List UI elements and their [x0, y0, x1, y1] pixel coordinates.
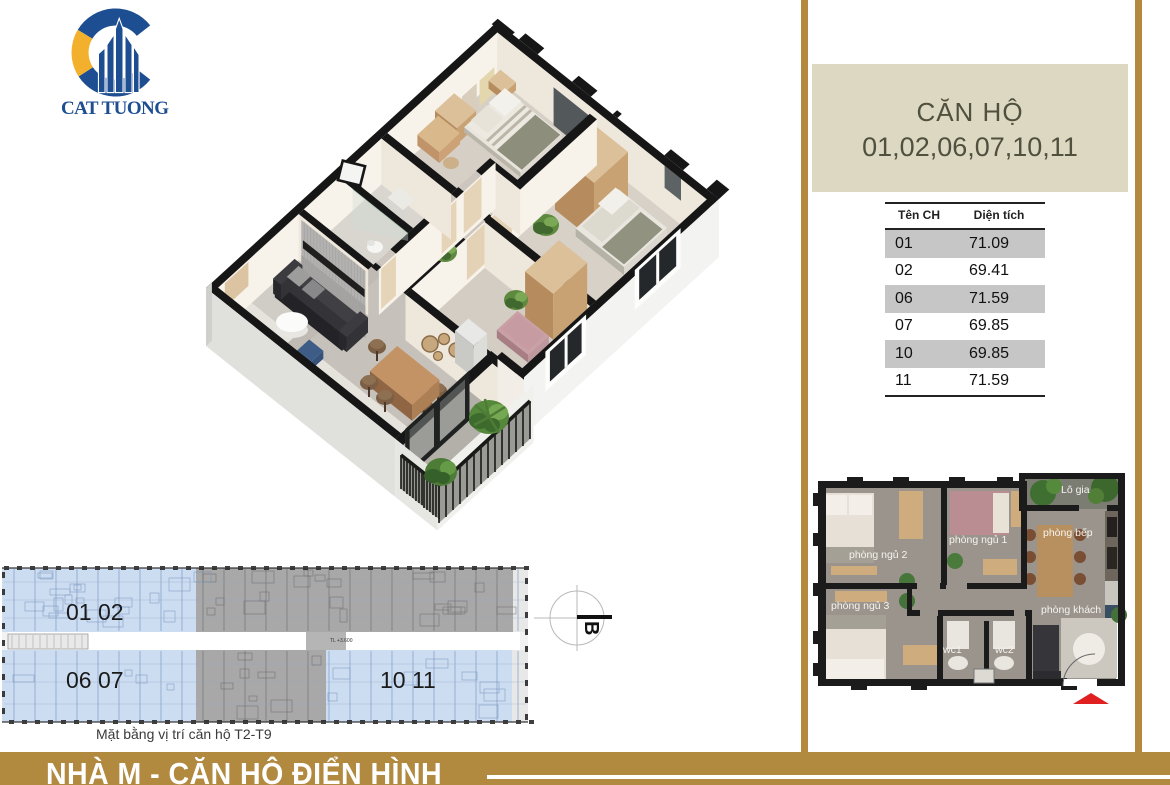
svg-text:TL +3.600: TL +3.600 [330, 638, 353, 644]
svg-text:06 07: 06 07 [66, 667, 124, 693]
svg-text:phòng ngủ 2: phòng ngủ 2 [849, 549, 908, 561]
svg-text:phòng ngủ 1: phòng ngủ 1 [949, 534, 1008, 546]
svg-text:phòng khách: phòng khách [1041, 604, 1101, 616]
svg-text:10 11: 10 11 [380, 667, 436, 693]
svg-text:phòng bếp: phòng bếp [1043, 527, 1093, 539]
svg-text:Lô gia: Lô gia [1061, 484, 1090, 496]
svg-text:B: B [580, 621, 602, 635]
svg-text:phòng ngủ 3: phòng ngủ 3 [831, 600, 890, 612]
svg-text:wc1: wc1 [942, 644, 962, 656]
svg-text:01 02: 01 02 [66, 599, 124, 625]
svg-text:wc2: wc2 [994, 644, 1014, 656]
